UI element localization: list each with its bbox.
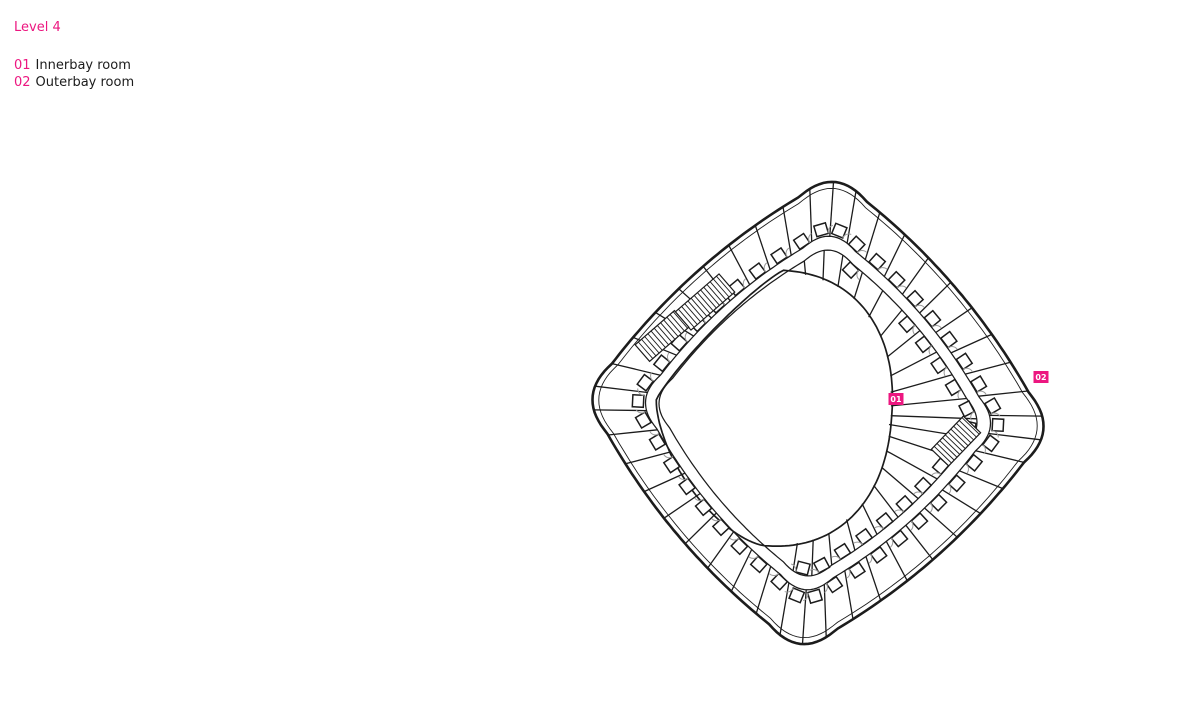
floor-plan-page: Level 4 01Innerbay room 02Outerbay room … <box>0 0 1200 701</box>
legend-item-outerbay: 02Outerbay room <box>14 74 134 91</box>
room-label-01: 01 <box>889 393 904 405</box>
corridor-outer-wall <box>646 236 991 590</box>
legend-item-innerbay: 01Innerbay room <box>14 57 134 74</box>
floor-plan-drawing: 0102 <box>0 0 1200 701</box>
legend-item-label: Outerbay room <box>36 75 135 90</box>
svg-text:02: 02 <box>1035 373 1046 382</box>
legend-item-number: 01 <box>14 58 31 73</box>
legend-item-label: Innerbay room <box>36 58 131 73</box>
door-swing-arcs <box>636 225 1000 600</box>
room-label-02: 02 <box>1034 371 1049 383</box>
page-title: Level 4 <box>14 20 134 35</box>
legend: Level 4 01Innerbay room 02Outerbay room <box>14 20 134 91</box>
legend-item-number: 02 <box>14 75 31 90</box>
svg-text:01: 01 <box>890 395 902 404</box>
stair-blocks <box>635 274 980 466</box>
